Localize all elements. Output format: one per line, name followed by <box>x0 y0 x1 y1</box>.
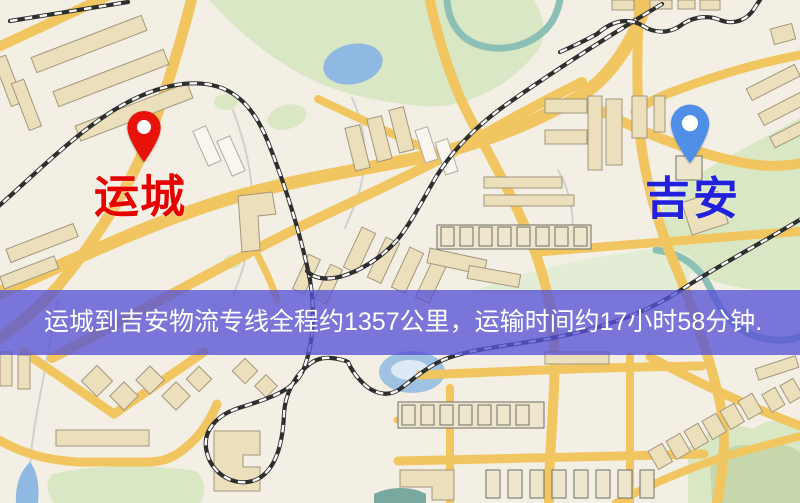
destination-pin[interactable] <box>667 102 713 166</box>
origin-label: 运城 <box>94 173 186 220</box>
destination-label: 吉安 <box>645 175 741 222</box>
route-info-text: 运城到吉安物流专线全程约1357公里，运输时间约17小时58分钟. <box>0 290 800 355</box>
map-view[interactable]: 运城 吉安 运城到吉安物流专线全程约1357公里，运输时间约17小时58分钟. <box>0 0 800 503</box>
map-pin-icon <box>124 103 164 170</box>
origin-pin[interactable] <box>124 103 164 170</box>
route-info-banner: 运城到吉安物流专线全程约1357公里，运输时间约17小时58分钟. <box>0 290 800 355</box>
basemap-canvas[interactable] <box>0 0 800 503</box>
map-pin-icon <box>667 102 713 166</box>
